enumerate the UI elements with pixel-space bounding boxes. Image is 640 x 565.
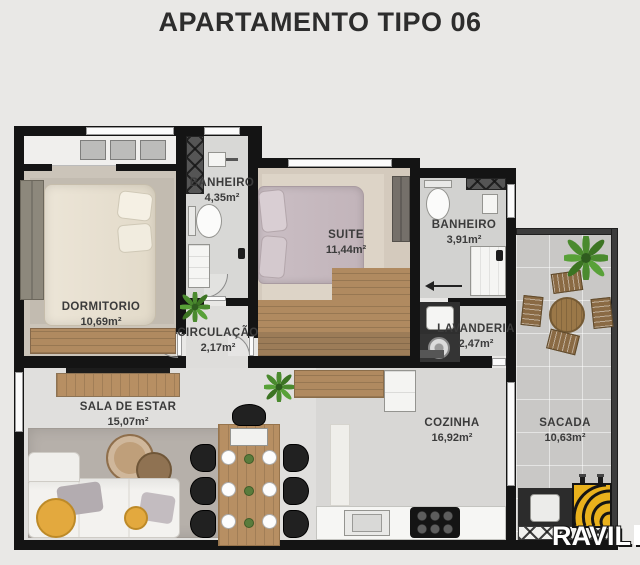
plate-4 bbox=[262, 450, 277, 465]
page-title: APARTAMENTO TIPO 06 bbox=[0, 7, 640, 38]
door-sacada bbox=[507, 382, 515, 486]
vanity-banheiro-social bbox=[188, 244, 210, 288]
dresser-dormitorio bbox=[30, 328, 176, 354]
wall-suite-right bbox=[410, 168, 420, 366]
cooktop bbox=[410, 507, 460, 538]
plate-6 bbox=[262, 514, 277, 529]
plate-3 bbox=[221, 514, 236, 529]
hand-shower-stem bbox=[226, 158, 238, 161]
pillow-dorm-2 bbox=[117, 223, 153, 254]
window-suite bbox=[288, 159, 392, 167]
wall-outer-right bbox=[506, 168, 516, 550]
plant-icon-sala bbox=[264, 372, 294, 402]
door-arrow-head bbox=[425, 281, 434, 291]
shower-head-icon-social bbox=[238, 248, 245, 259]
window-banheiro-suite bbox=[507, 184, 515, 218]
dining-chair-l2 bbox=[190, 477, 216, 505]
kitchen-island-strip bbox=[330, 424, 350, 506]
pillow-suite-1 bbox=[258, 189, 288, 233]
brand-logo: RAVIL bbox=[552, 521, 640, 552]
room-label-cozinha: COZINHA 16,92m² bbox=[424, 416, 479, 445]
room-area: 16,92m² bbox=[424, 431, 479, 445]
dining-chair-r2 bbox=[283, 477, 309, 505]
plate-5 bbox=[262, 482, 277, 497]
tv-rack-sala bbox=[56, 373, 180, 397]
suite-bench bbox=[258, 332, 410, 356]
room-name: BANHEIRO bbox=[190, 176, 255, 191]
room-label-banheiro-social: BANHEIRO 4,35m² bbox=[190, 176, 255, 205]
plant-icon-circulacao bbox=[180, 292, 210, 322]
toilet-bowl-suite bbox=[426, 188, 450, 220]
room-area: 15,07m² bbox=[80, 415, 177, 429]
balcony-chair-right bbox=[590, 297, 613, 329]
grill-icon bbox=[572, 474, 612, 528]
sofa-chaise bbox=[28, 452, 80, 482]
dining-tray bbox=[230, 428, 268, 446]
wall-dorm-bottom bbox=[14, 356, 186, 368]
window-sala bbox=[15, 372, 23, 432]
room-label-sala-de-estar: SALA DE ESTAR 15,07m² bbox=[80, 400, 177, 429]
closet-divider-wall-left bbox=[20, 164, 52, 171]
toilet-bowl-social bbox=[196, 204, 222, 238]
window-dormitorio bbox=[86, 127, 174, 135]
room-label-lavanderia: LAVANDERIA 2,47m² bbox=[437, 322, 515, 351]
room-label-circulacao: CIRCULAÇÃO 2,17m² bbox=[177, 326, 258, 355]
room-name: SUITE bbox=[326, 228, 366, 243]
fridge bbox=[384, 370, 416, 412]
wall-outer-bottom bbox=[14, 540, 618, 550]
suite-wood-floor-step bbox=[332, 268, 410, 302]
dining-chair-top bbox=[232, 404, 266, 426]
dining-chair-l3 bbox=[190, 510, 216, 538]
brand-mark-bar bbox=[634, 525, 640, 545]
plate-1 bbox=[221, 450, 236, 465]
wall-sink-suite bbox=[482, 194, 498, 214]
shower-bar-suite bbox=[466, 178, 506, 190]
room-name: CIRCULAÇÃO bbox=[177, 326, 258, 341]
kitchen-top-counter bbox=[294, 370, 384, 398]
room-name: SACADA bbox=[539, 416, 591, 431]
pouf-yellow-large bbox=[36, 498, 76, 538]
room-label-banheiro-suite: BANHEIRO 3,91m² bbox=[432, 218, 497, 247]
dining-chair-r3 bbox=[283, 510, 309, 538]
room-label-sacada: SACADA 10,63m² bbox=[539, 416, 591, 445]
room-name: COZINHA bbox=[424, 416, 479, 431]
room-name: SALA DE ESTAR bbox=[80, 400, 177, 415]
wall-banheiro-suite-div bbox=[248, 126, 258, 308]
room-area: 10,63m² bbox=[539, 431, 591, 445]
balcony-chair-left bbox=[520, 295, 543, 327]
room-area: 11,44m² bbox=[326, 243, 366, 257]
door-leaf-lavanderia bbox=[492, 358, 506, 366]
room-area: 10,69m² bbox=[62, 315, 141, 329]
wall-banheiro2-bottom-l bbox=[410, 298, 420, 306]
toilet-tank-suite bbox=[424, 180, 452, 188]
wall-outer-top-c bbox=[410, 168, 516, 178]
room-area: 4,35m² bbox=[190, 191, 255, 205]
pouf-yellow-small bbox=[124, 506, 148, 530]
window-banheiro-social bbox=[204, 127, 240, 135]
plate-2 bbox=[221, 482, 236, 497]
door-arrow-banheiro-suite bbox=[432, 285, 462, 287]
balcony-sink bbox=[530, 494, 560, 522]
wall-sacada-top bbox=[516, 228, 618, 235]
wardrobe-suite bbox=[392, 176, 410, 242]
wardrobe-dormitorio bbox=[20, 180, 44, 300]
shower-head-icon-suite bbox=[496, 250, 503, 261]
room-label-dormitorio: DORMITORIO 10,69m² bbox=[62, 300, 141, 329]
room-area: 2,17m² bbox=[177, 341, 258, 355]
kitchen-sink-bowl bbox=[352, 514, 382, 532]
room-name: LAVANDERIA bbox=[437, 322, 515, 337]
plant-icon-sacada bbox=[564, 236, 608, 280]
room-name: BANHEIRO bbox=[432, 218, 497, 233]
room-name: DORMITORIO bbox=[62, 300, 141, 315]
centerpiece-2 bbox=[244, 486, 254, 496]
balcony-table bbox=[549, 297, 585, 333]
brand-text: RAVIL bbox=[552, 521, 631, 551]
dining-chair-r1 bbox=[283, 444, 309, 472]
toilet-tank-social bbox=[188, 206, 196, 236]
hand-shower-icon bbox=[208, 152, 226, 167]
room-label-suite: SUITE 11,44m² bbox=[326, 228, 366, 257]
closet-box-2 bbox=[110, 140, 136, 160]
dining-chair-l1 bbox=[190, 444, 216, 472]
wall-banheiro1-bottom-r bbox=[226, 298, 248, 306]
room-area: 2,47m² bbox=[437, 337, 515, 351]
closet-divider-wall-right bbox=[116, 164, 182, 171]
closet-box-3 bbox=[140, 140, 166, 160]
floorplan-page: APARTAMENTO TIPO 06 bbox=[0, 0, 640, 565]
pillow-suite-2 bbox=[258, 235, 288, 279]
pillow-dorm-1 bbox=[116, 190, 153, 222]
centerpiece-3 bbox=[244, 518, 254, 528]
closet-box-1 bbox=[80, 140, 106, 160]
centerpiece-1 bbox=[244, 454, 254, 464]
wall-sacada-right bbox=[611, 228, 618, 546]
room-area: 3,91m² bbox=[432, 233, 497, 247]
